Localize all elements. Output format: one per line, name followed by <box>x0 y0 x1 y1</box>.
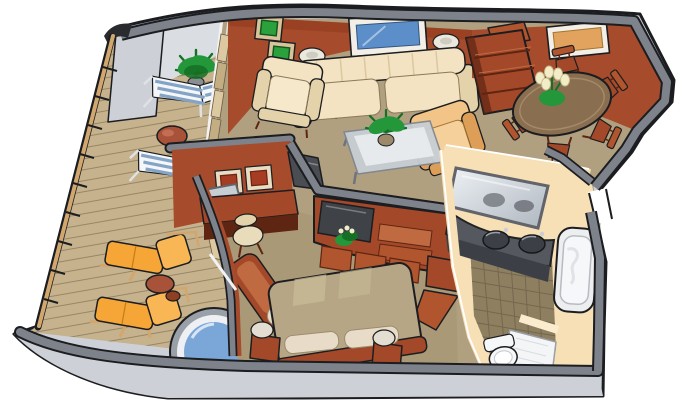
suite-floorplan <box>0 0 680 411</box>
bedside-lamp-left <box>251 322 273 338</box>
sink-right <box>519 235 545 253</box>
floorplan-illustration <box>0 0 680 411</box>
sink-left <box>483 231 509 249</box>
wall-art-red-2 <box>245 165 273 191</box>
balcony-side-wall <box>108 26 164 122</box>
bedside-lamp-right <box>373 330 395 346</box>
